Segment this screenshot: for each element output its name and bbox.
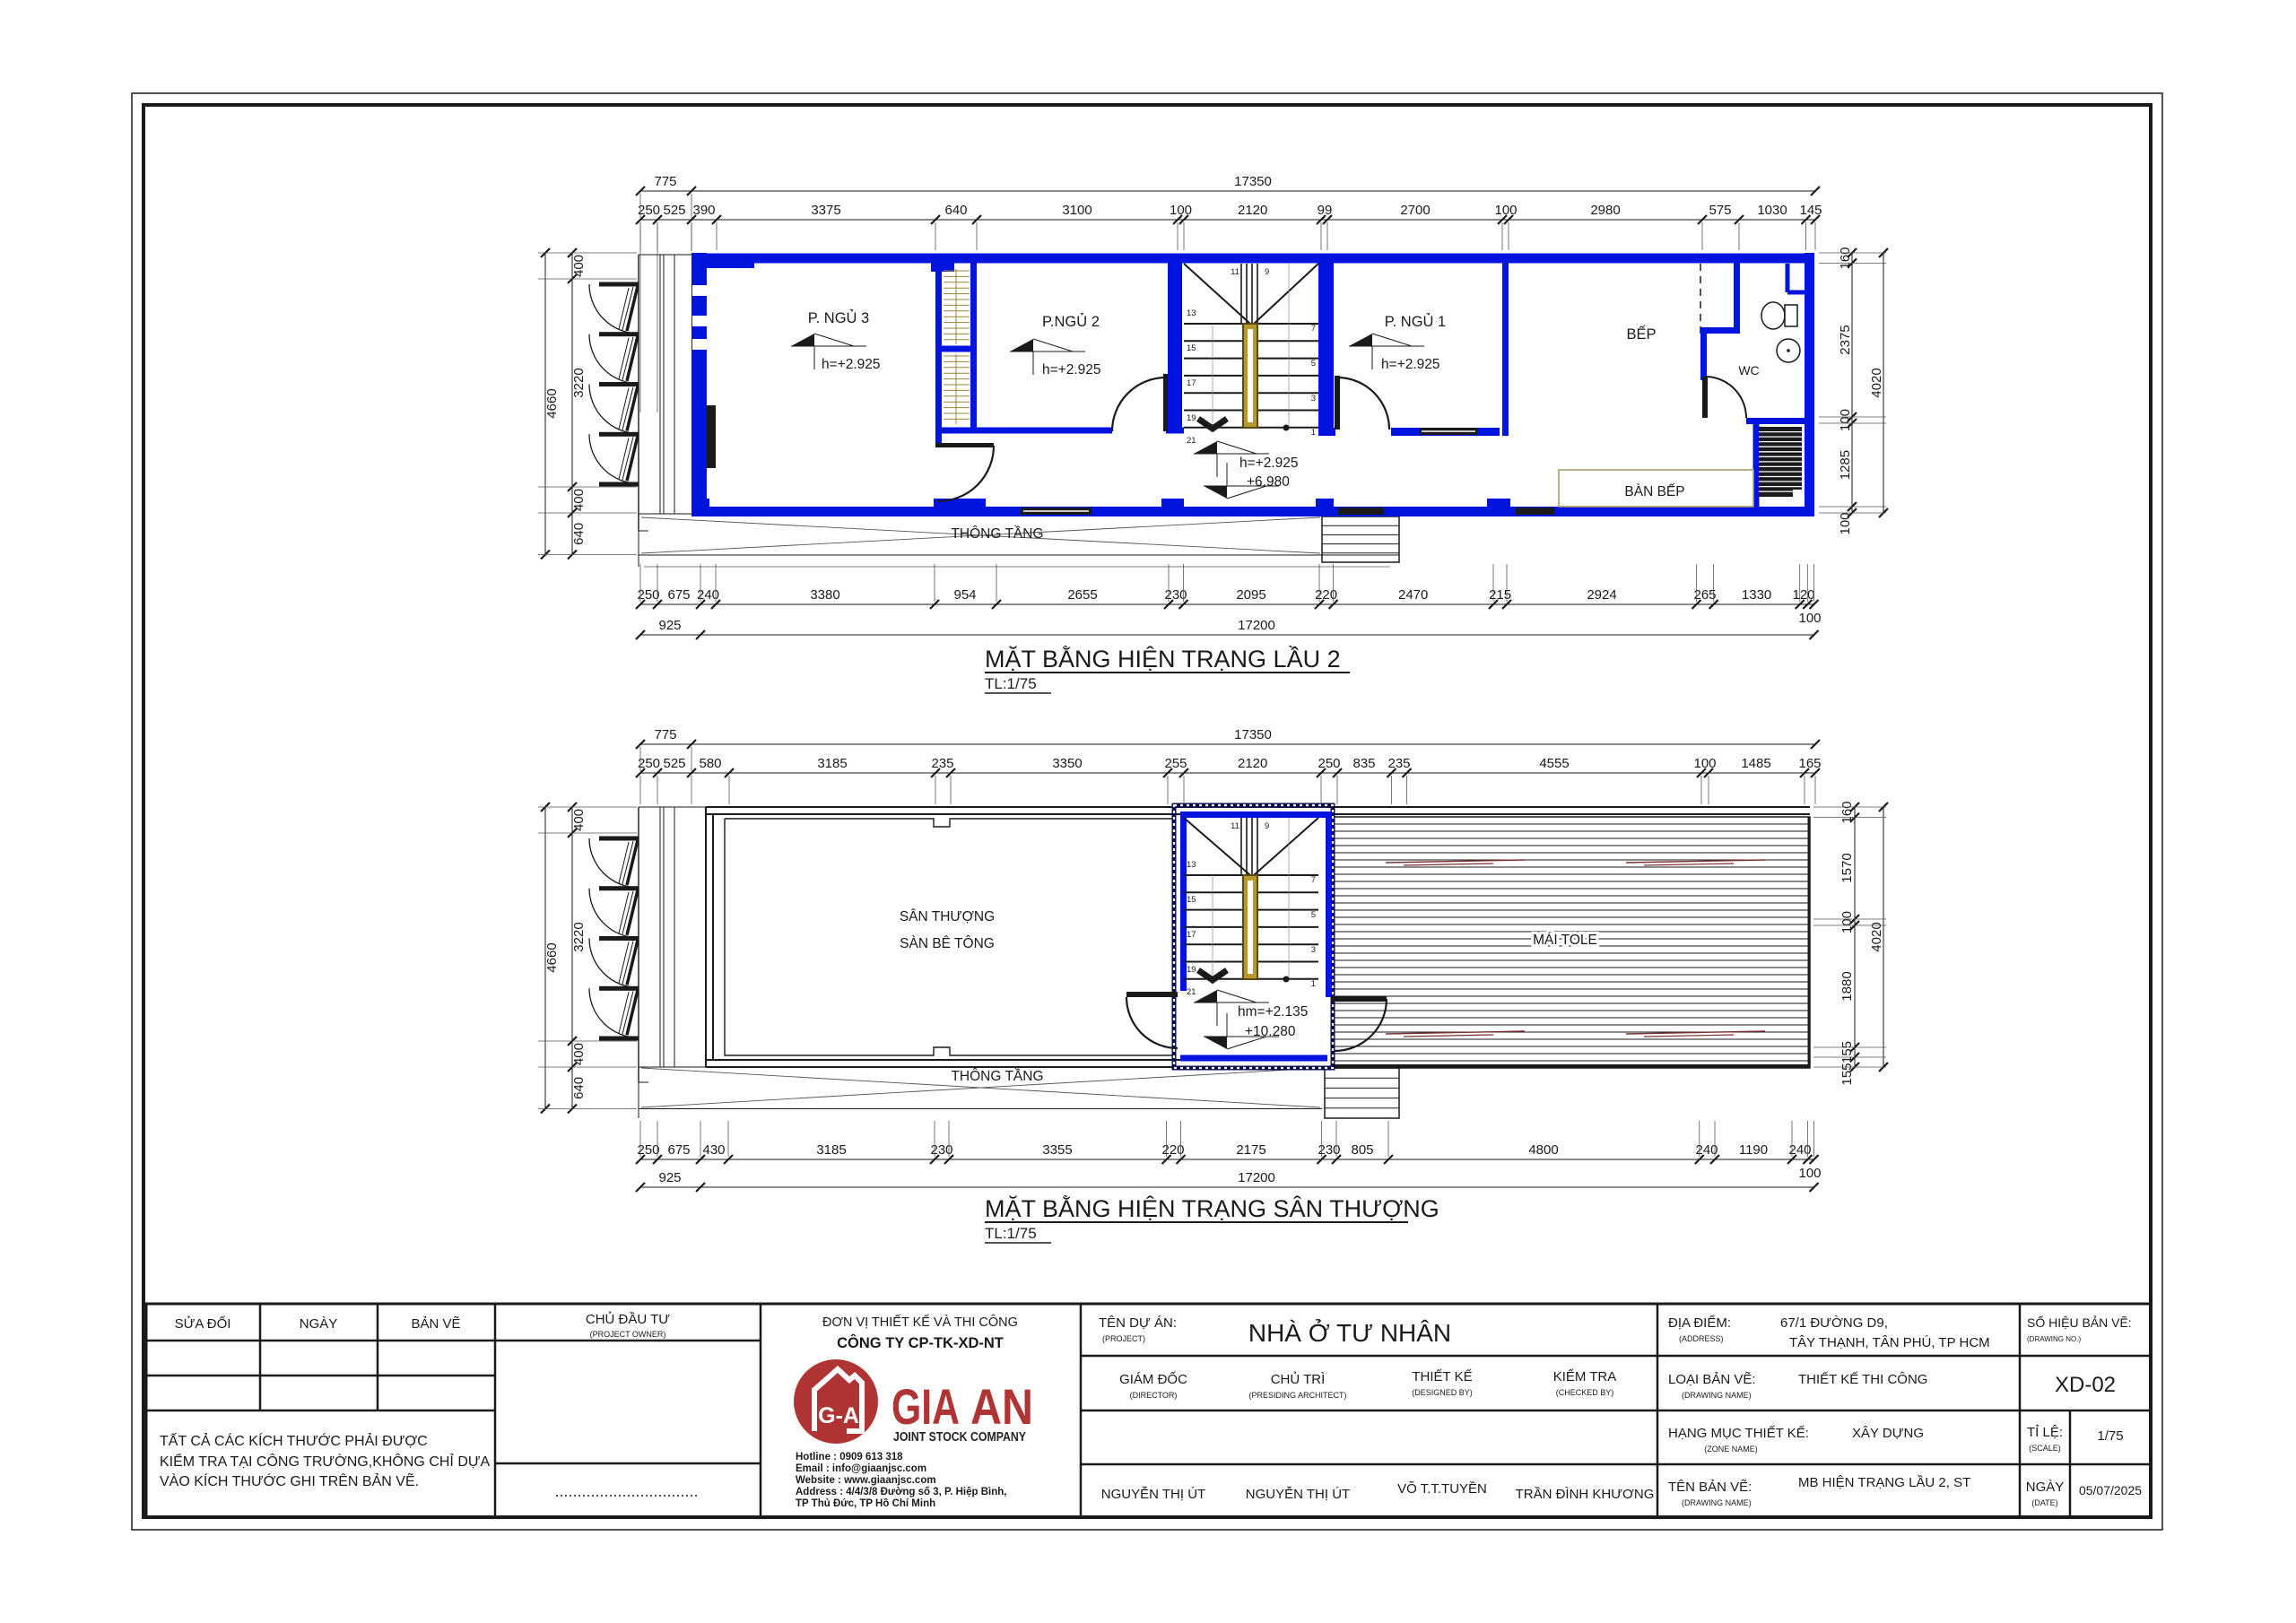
svg-text:HẠNG MỤC THIẾT KẾ:: HẠNG MỤC THIẾT KẾ:	[1668, 1426, 1809, 1441]
svg-text:11: 11	[1231, 267, 1239, 277]
svg-text:(PROJECT): (PROJECT)	[1102, 1334, 1145, 1343]
svg-text:9: 9	[1265, 267, 1269, 277]
svg-text:2980: 2980	[1590, 203, 1620, 218]
svg-text:775: 775	[654, 174, 676, 189]
svg-text:(PROJECT OWNER): (PROJECT OWNER)	[590, 1330, 666, 1339]
svg-text:675: 675	[667, 587, 690, 603]
svg-text:775: 775	[654, 727, 676, 742]
svg-text:580: 580	[699, 756, 721, 771]
svg-text:(ADDRESS): (ADDRESS)	[1679, 1334, 1724, 1343]
svg-text:4660: 4660	[544, 942, 560, 972]
svg-text:17200: 17200	[1238, 1170, 1275, 1185]
svg-text:13: 13	[1187, 308, 1196, 318]
svg-text:SỐ HIỆU BẢN VẼ:: SỐ HIỆU BẢN VẼ:	[2027, 1315, 2132, 1330]
svg-text:3: 3	[1311, 394, 1316, 404]
svg-text:925: 925	[658, 1170, 681, 1185]
svg-text:JOINT STOCK COMPANY: JOINT STOCK COMPANY	[893, 1430, 1026, 1445]
svg-text:525: 525	[663, 203, 685, 218]
svg-text:SỬA ĐỔI: SỬA ĐỔI	[175, 1315, 231, 1332]
svg-text:4660: 4660	[544, 388, 560, 418]
svg-text:640: 640	[944, 203, 967, 218]
svg-text:hm=+2.135: hm=+2.135	[1238, 1004, 1308, 1020]
svg-text:TL:1/75: TL:1/75	[985, 675, 1037, 692]
svg-text:(DIRECTOR): (DIRECTOR)	[1130, 1391, 1178, 1400]
svg-text:2175: 2175	[1236, 1142, 1265, 1158]
svg-text:(DRAWING NAME): (DRAWING NAME)	[1682, 1391, 1752, 1400]
svg-text:BÀN BẾP: BÀN BẾP	[1624, 484, 1684, 499]
svg-text:3185: 3185	[816, 1142, 846, 1158]
svg-text:1880: 1880	[1839, 971, 1855, 1001]
svg-text:2655: 2655	[1067, 587, 1097, 603]
svg-text:525: 525	[663, 756, 685, 771]
svg-text:(DATE): (DATE)	[2031, 1498, 2057, 1507]
svg-text:NGÀY: NGÀY	[2026, 1480, 2065, 1495]
svg-text:(CHECKED BY): (CHECKED BY)	[1556, 1388, 1614, 1397]
svg-text:(PRESIDING ARCHITECT): (PRESIDING ARCHITECT)	[1248, 1391, 1346, 1400]
svg-text:3: 3	[1311, 945, 1316, 955]
svg-text:17200: 17200	[1238, 618, 1275, 633]
svg-text:MB HIỆN TRẠNG LẦU 2, ST: MB HIỆN TRẠNG LẦU 2, ST	[1798, 1475, 1970, 1490]
svg-text:5: 5	[1311, 910, 1316, 920]
svg-text:235: 235	[931, 756, 953, 771]
svg-text:CÔNG TY CP-TK-XD-NT: CÔNG TY CP-TK-XD-NT	[837, 1334, 1004, 1351]
svg-text:7: 7	[1311, 875, 1316, 885]
svg-text:2120: 2120	[1238, 756, 1267, 771]
svg-text:255: 255	[1164, 756, 1187, 771]
svg-text:1285: 1285	[1838, 450, 1853, 480]
svg-text:11: 11	[1231, 821, 1239, 831]
svg-text:1570: 1570	[1839, 853, 1855, 882]
svg-text:640: 640	[571, 1077, 587, 1099]
svg-text:925: 925	[658, 618, 681, 633]
svg-text:1485: 1485	[1741, 756, 1770, 771]
svg-text:120: 120	[1792, 587, 1814, 603]
svg-text:835: 835	[1352, 756, 1375, 771]
svg-text:100: 100	[1838, 512, 1853, 534]
svg-text:THIẾT KẾ THI CÔNG: THIẾT KẾ THI CÔNG	[1798, 1372, 1927, 1387]
svg-text:4555: 4555	[1539, 756, 1569, 771]
svg-text:GIÁM ĐỐC: GIÁM ĐỐC	[1119, 1371, 1187, 1387]
svg-text:+6.980: +6.980	[1247, 474, 1290, 490]
svg-text:TÊN DỰ ÁN:: TÊN DỰ ÁN:	[1099, 1315, 1177, 1331]
svg-text:TL:1/75: TL:1/75	[985, 1225, 1037, 1242]
svg-text:3375: 3375	[811, 203, 840, 218]
svg-text:Hotline : 0909 613 318: Hotline : 0909 613 318	[796, 1452, 903, 1462]
svg-text:19: 19	[1187, 413, 1196, 423]
svg-text:250: 250	[638, 203, 660, 218]
svg-text:(DESIGNED BY): (DESIGNED BY)	[1412, 1388, 1473, 1397]
svg-text:WC: WC	[1738, 363, 1759, 378]
svg-text:LOẠI BẢN VẼ:: LOẠI BẢN VẼ:	[1668, 1372, 1756, 1387]
svg-text:2375: 2375	[1838, 325, 1853, 354]
svg-text:250: 250	[1318, 756, 1340, 771]
svg-text:BẢN VẼ: BẢN VẼ	[411, 1316, 460, 1332]
svg-text:THIẾT KẾ: THIẾT KẾ	[1412, 1369, 1472, 1384]
svg-text:ĐƠN VỊ THIẾT KẾ VÀ THI CÔNG: ĐƠN VỊ THIẾT KẾ VÀ THI CÔNG	[822, 1315, 1018, 1330]
svg-text:220: 220	[1315, 587, 1337, 603]
svg-text:21: 21	[1187, 987, 1196, 997]
svg-text:TẤT CẢ CÁC KÍCH THƯỚC PHẢI ĐƯỢ: TẤT CẢ CÁC KÍCH THƯỚC PHẢI ĐƯỢC	[160, 1432, 428, 1449]
svg-text:NGUYỄN THỊ ÚT: NGUYỄN THỊ ÚT	[1101, 1487, 1205, 1502]
svg-text:(DRAWING NAME): (DRAWING NAME)	[1682, 1498, 1752, 1507]
svg-text:15: 15	[1187, 895, 1196, 905]
svg-text:100: 100	[1798, 611, 1821, 626]
svg-text:230: 230	[930, 1142, 952, 1158]
svg-text:400: 400	[571, 1043, 587, 1065]
svg-text:TÊN BẢN VẼ:: TÊN BẢN VẼ:	[1668, 1480, 1752, 1495]
svg-text:4800: 4800	[1528, 1142, 1558, 1158]
svg-text:BẾP: BẾP	[1626, 325, 1656, 343]
svg-text:805: 805	[1351, 1142, 1373, 1158]
svg-text:ĐỊA ĐIỂM:: ĐỊA ĐIỂM:	[1668, 1315, 1731, 1331]
svg-text:160: 160	[1838, 247, 1853, 269]
svg-text:100: 100	[1798, 1166, 1821, 1181]
svg-text:575: 575	[1709, 203, 1731, 218]
svg-text:15: 15	[1187, 343, 1196, 353]
svg-text:CHỦ TRÌ: CHỦ TRÌ	[1271, 1371, 1326, 1387]
svg-text:100: 100	[1839, 911, 1855, 933]
svg-text:VÀO KÍCH THƯỚC GHI TRÊN BẢN VẼ: VÀO KÍCH THƯỚC GHI TRÊN BẢN VẼ.	[160, 1471, 419, 1489]
svg-text:235: 235	[1387, 756, 1410, 771]
svg-text:1/75: 1/75	[2097, 1428, 2123, 1444]
svg-text:4020: 4020	[1869, 922, 1884, 951]
svg-text:100: 100	[1494, 203, 1517, 218]
svg-text:MẶT BẰNG HIỆN TRẠNG SÂN THƯỢNG: MẶT BẰNG HIỆN TRẠNG SÂN THƯỢNG	[985, 1194, 1439, 1222]
svg-text:165: 165	[1798, 756, 1821, 771]
svg-text:640: 640	[571, 523, 587, 545]
svg-text:NHÀ Ở TƯ NHÂN: NHÀ Ở TƯ NHÂN	[1248, 1318, 1451, 1347]
svg-text:3220: 3220	[571, 368, 587, 397]
svg-text:250: 250	[638, 756, 660, 771]
svg-text:G-A: G-A	[818, 1403, 859, 1428]
svg-text:3350: 3350	[1052, 756, 1082, 771]
svg-text:05/07/2025: 05/07/2025	[2079, 1483, 2142, 1497]
svg-text:KIỂM TRA TẠI CÔNG TRƯỜNG,KHÔNG: KIỂM TRA TẠI CÔNG TRƯỜNG,KHÔNG CHỈ DỰA	[160, 1453, 491, 1470]
svg-text:2095: 2095	[1236, 587, 1265, 603]
svg-text:3185: 3185	[817, 756, 847, 771]
svg-text:KIỂM TRA: KIỂM TRA	[1553, 1368, 1617, 1384]
svg-text:P.NGỦ 2: P.NGỦ 2	[1042, 313, 1100, 330]
svg-text:155: 155	[1839, 1063, 1855, 1085]
svg-text:215: 215	[1489, 587, 1511, 603]
svg-text:h=+2.925: h=+2.925	[1381, 357, 1440, 372]
svg-text:160: 160	[1839, 801, 1855, 823]
svg-text:1190: 1190	[1739, 1142, 1768, 1158]
svg-text:155: 155	[1839, 1041, 1855, 1063]
svg-text:3380: 3380	[810, 587, 839, 603]
svg-text:THÔNG TẦNG: THÔNG TẦNG	[951, 1069, 1043, 1084]
svg-text:MÁI TOLE: MÁI TOLE	[1533, 933, 1597, 948]
svg-text:2470: 2470	[1398, 587, 1428, 603]
svg-text:400: 400	[571, 809, 587, 831]
svg-text:MẶT BẰNG HIỆN TRẠNG LẦU 2: MẶT BẰNG HIỆN TRẠNG LẦU 2	[985, 645, 1341, 673]
svg-text:(ZONE NAME): (ZONE NAME)	[1704, 1445, 1758, 1454]
svg-text:SÀN BÊ TÔNG: SÀN BÊ TÔNG	[900, 936, 995, 951]
svg-text:THÔNG TẦNG: THÔNG TẦNG	[951, 526, 1043, 542]
svg-text:TỈ LỆ:: TỈ LỆ:	[2027, 1425, 2063, 1440]
svg-text:675: 675	[667, 1142, 690, 1158]
svg-text:400: 400	[571, 489, 587, 511]
svg-text:TÂY THẠNH, TÂN PHÚ, TP HCM: TÂY THẠNH, TÂN PHÚ, TP HCM	[1789, 1335, 1990, 1350]
svg-text:h=+2.925: h=+2.925	[822, 357, 881, 372]
svg-text:TRẦN ĐÌNH KHƯƠNG: TRẦN ĐÌNH KHƯƠNG	[1516, 1487, 1655, 1502]
svg-text:3100: 3100	[1062, 203, 1091, 218]
svg-text:AN: AN	[970, 1378, 1033, 1435]
svg-text:390: 390	[692, 203, 715, 218]
svg-text:2924: 2924	[1587, 587, 1616, 603]
svg-text:67/1 ĐƯỜNG D9,: 67/1 ĐƯỜNG D9,	[1780, 1315, 1888, 1331]
svg-text:430: 430	[702, 1142, 725, 1158]
svg-text:(SCALE): (SCALE)	[2029, 1444, 2061, 1453]
svg-text:Website : www.giaanjsc.com: Website : www.giaanjsc.com	[796, 1475, 936, 1486]
svg-text:VÕ T.T.TUYỀN: VÕ T.T.TUYỀN	[1397, 1481, 1487, 1497]
svg-text:1030: 1030	[1757, 203, 1787, 218]
svg-text:265: 265	[1693, 587, 1716, 603]
svg-text:XÂY DỰNG: XÂY DỰNG	[1852, 1426, 1924, 1441]
svg-text:1: 1	[1311, 428, 1316, 438]
svg-text:17: 17	[1187, 378, 1196, 388]
svg-text:GIA: GIA	[891, 1378, 960, 1435]
svg-text:TP Thủ Đức, TP Hồ Chí Minh: TP Thủ Đức, TP Hồ Chí Minh	[796, 1498, 935, 1509]
svg-text:5: 5	[1311, 359, 1316, 369]
svg-text:21: 21	[1187, 436, 1196, 446]
svg-text:NGÀY: NGÀY	[300, 1316, 338, 1332]
svg-text:2120: 2120	[1238, 203, 1267, 218]
svg-text:19: 19	[1187, 965, 1196, 975]
svg-text:1: 1	[1311, 979, 1316, 989]
svg-text:13: 13	[1187, 860, 1196, 870]
svg-text:h=+2.925: h=+2.925	[1239, 456, 1299, 471]
svg-text:Email : info@giaanjsc.com: Email : info@giaanjsc.com	[796, 1463, 926, 1474]
svg-text:100: 100	[1170, 203, 1192, 218]
svg-text:SÂN THƯỢNG: SÂN THƯỢNG	[900, 909, 995, 924]
svg-text:99: 99	[1318, 203, 1333, 218]
svg-text:17350: 17350	[1234, 727, 1272, 742]
svg-text:NGUYỄN THỊ ÚT: NGUYỄN THỊ ÚT	[1246, 1487, 1350, 1502]
svg-text:(DRAWING NO.): (DRAWING NO.)	[2027, 1335, 2081, 1343]
svg-text:h=+2.925: h=+2.925	[1042, 362, 1101, 378]
svg-text:1330: 1330	[1742, 587, 1771, 603]
svg-text:2700: 2700	[1400, 203, 1430, 218]
svg-text:P. NGỦ 3: P. NGỦ 3	[808, 309, 869, 326]
svg-text:100: 100	[1838, 409, 1853, 431]
svg-text:17: 17	[1187, 930, 1196, 940]
svg-text:XD-02: XD-02	[2055, 1373, 2116, 1397]
svg-text:3220: 3220	[571, 922, 587, 951]
svg-text:P. NGỦ 1: P. NGỦ 1	[1385, 313, 1446, 330]
svg-text:CHỦ ĐẦU TƯ: CHỦ ĐẦU TƯ	[586, 1311, 670, 1327]
svg-text:400: 400	[571, 255, 587, 277]
svg-text:7: 7	[1311, 324, 1316, 334]
svg-text:9: 9	[1265, 821, 1269, 831]
svg-text:4020: 4020	[1869, 368, 1884, 397]
svg-text:100: 100	[1693, 756, 1716, 771]
svg-text:17350: 17350	[1234, 174, 1272, 189]
svg-text:3355: 3355	[1042, 1142, 1072, 1158]
svg-text:954: 954	[953, 587, 976, 603]
svg-text:145: 145	[1799, 203, 1822, 218]
svg-text:Address : 4/4/3/8 Đường số 3,: Address : 4/4/3/8 Đường số 3, P. Hiệp Bì…	[796, 1487, 1007, 1497]
